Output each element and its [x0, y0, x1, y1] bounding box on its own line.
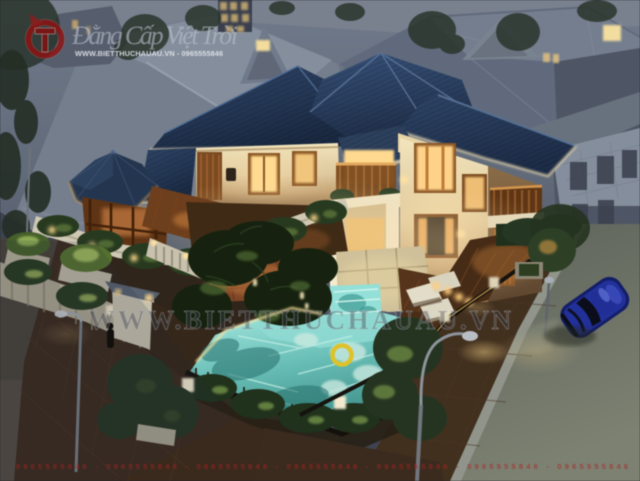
svg-text:Đằng Cấp Việt Trời: Đằng Cấp Việt Trời: [71, 21, 238, 50]
svg-text:WWW.BIETTHUCHAUAU.VN - 0965555: WWW.BIETTHUCHAUAU.VN - 0965555846: [75, 49, 223, 58]
svg-text:WWW.BIETTHUCHAUAU.VN: WWW.BIETTHUCHAUAU.VN: [88, 305, 512, 335]
